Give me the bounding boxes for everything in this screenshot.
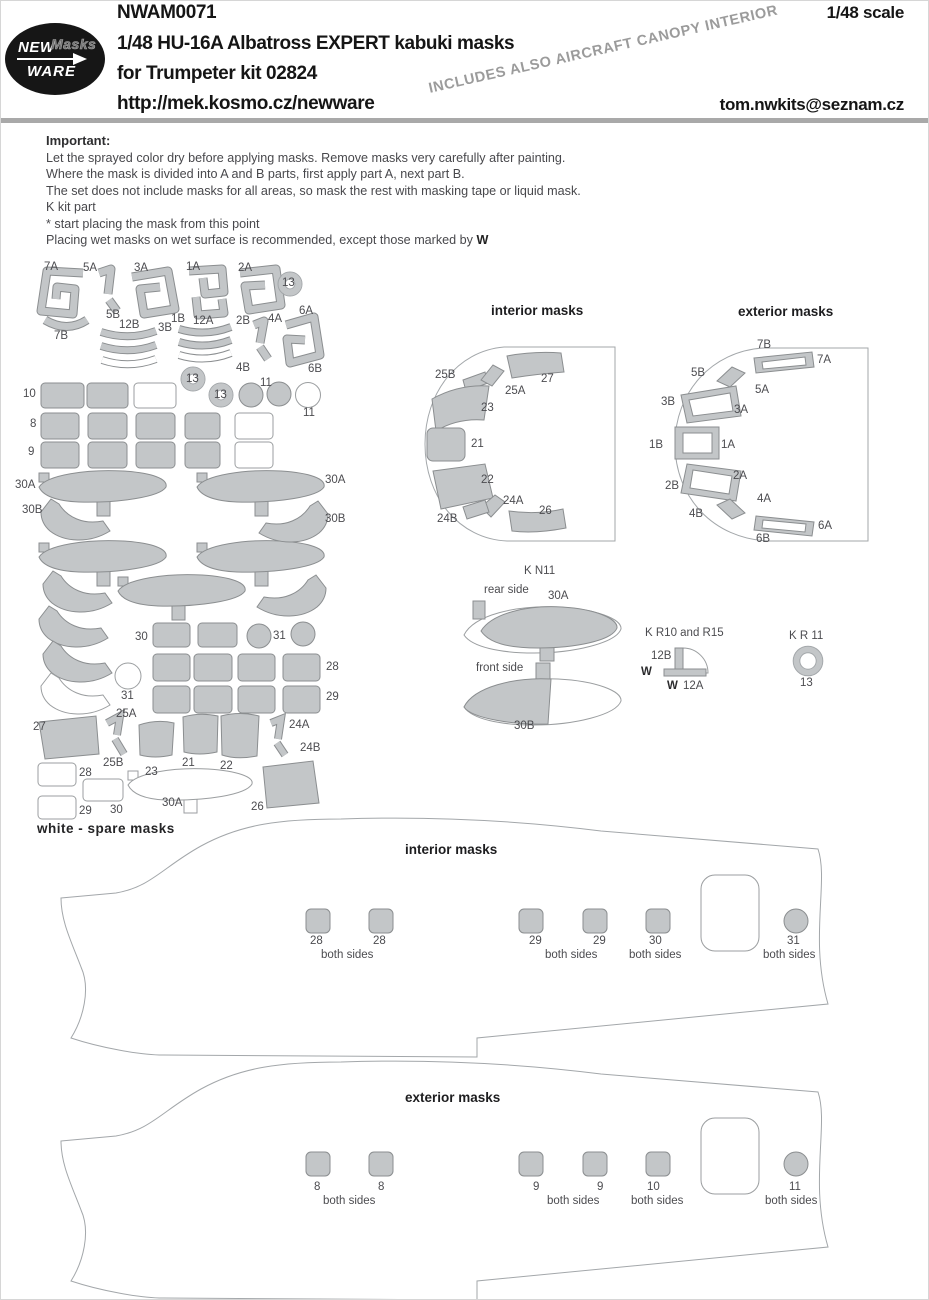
part-label: 30B [325, 513, 345, 525]
porthole-mask [784, 1152, 808, 1176]
instruction-sheet: NEW Masks WARE NWAM0071 1/48 HU-16A Alba… [0, 0, 929, 1300]
part-label: W [641, 666, 652, 678]
part-label: 4B [236, 362, 250, 374]
window-masks-row-10 [41, 383, 176, 408]
fuselage-interior-drawing [41, 819, 841, 1069]
part-label: 29 [593, 935, 606, 947]
part-label: both sides [763, 949, 815, 961]
part-label: 1B [171, 313, 185, 325]
part-label: 30 [649, 935, 662, 947]
part-label: 22 [481, 474, 494, 486]
instruction-line: K kit part [46, 199, 666, 215]
part-label: 1A [721, 439, 735, 451]
part-label: 5B [106, 309, 120, 321]
part-label: 12A [193, 315, 213, 327]
part-label: 29 [326, 691, 339, 703]
part-label: 24B [300, 742, 320, 754]
part-label: 27 [33, 721, 46, 733]
mask-22 [221, 714, 259, 758]
newware-logo: NEW Masks WARE [5, 23, 105, 95]
window-masks-row-30 [153, 622, 315, 648]
part-label: 30A [15, 479, 35, 491]
instructions-lines: Let the sprayed color dry before applyin… [46, 150, 666, 232]
part-label: 2A [238, 262, 252, 274]
part-label: both sides [323, 1195, 375, 1207]
part-label: 24A [503, 495, 523, 507]
part-label: 7A [817, 354, 831, 366]
ext-mask-5 [717, 367, 745, 387]
part-label: 30A [325, 474, 345, 486]
part-label: 5A [83, 262, 97, 274]
part-label: 11 [789, 1181, 801, 1193]
part-label: 29 [79, 805, 92, 817]
part-label: 7B [757, 339, 771, 351]
logo-text-new: NEW [18, 39, 55, 56]
ring-mask-13 [793, 646, 823, 676]
part-label: 25B [103, 757, 123, 769]
strip-masks-12B [101, 331, 156, 364]
door-outline [701, 875, 759, 951]
website-url: http://mek.kosmo.cz/newware [117, 93, 374, 115]
mask-25A-25B [107, 716, 124, 754]
mask-26 [263, 761, 319, 808]
part-label: 9 [533, 1181, 539, 1193]
part-label: 31 [273, 630, 286, 642]
canopy-mask-4 [254, 321, 268, 359]
mask-12A-bar [664, 669, 706, 676]
instruction-line: * start placing the mask from this point [46, 216, 666, 232]
part-label: 4A [757, 493, 771, 505]
part-label: 1A [186, 261, 200, 273]
part-label: both sides [321, 949, 373, 961]
part-label: 1B [649, 439, 663, 451]
part-label: K R10 and R15 [645, 627, 724, 639]
part-label: 8 [30, 418, 36, 430]
part-label: 11 [303, 407, 315, 419]
header-divider [1, 118, 929, 123]
part-label: 9 [597, 1181, 603, 1193]
part-label: 3B [661, 396, 675, 408]
part-label: 10 [647, 1181, 660, 1193]
part-label: 5B [691, 367, 705, 379]
logo-text-masks: Masks [51, 36, 96, 52]
part-label: 29 [529, 935, 542, 947]
part-label: 3B [158, 322, 172, 334]
part-label: 28 [79, 767, 92, 779]
int-mask-21 [427, 428, 465, 461]
part-label: 13 [186, 373, 199, 385]
wet-marker: W [476, 233, 488, 247]
window-masks-row-29 [153, 686, 320, 713]
part-label: 31 [787, 935, 800, 947]
part-label: 12B [651, 650, 671, 662]
part-label: 26 [539, 505, 552, 517]
instruction-line: The set does not include masks for all a… [46, 183, 666, 199]
logo-text-ware: WARE [27, 63, 76, 80]
mask-23 [139, 721, 174, 757]
part-label: 13 [800, 677, 813, 689]
door-outline [701, 1118, 759, 1194]
mask-27 [39, 716, 99, 759]
window-masks-row-8 [41, 413, 273, 439]
part-label: 8 [314, 1181, 320, 1193]
part-label: 25B [435, 369, 455, 381]
part-label: 12B [119, 319, 139, 331]
logo-arrow-icon [17, 58, 75, 60]
ext-mask-4 [717, 499, 745, 519]
part-label: 8 [378, 1181, 384, 1193]
product-subtitle: for Trumpeter kit 02824 [117, 63, 317, 85]
part-label: 30B [22, 504, 42, 516]
part-label: 26 [251, 801, 264, 813]
wet-masks-line: Placing wet masks on wet surface is reco… [46, 232, 666, 248]
part-label: both sides [631, 1195, 683, 1207]
part-label: 21 [471, 438, 484, 450]
part-label: both sides [765, 1195, 817, 1207]
porthole-masks-11 [239, 382, 321, 408]
part-label: 25A [116, 708, 136, 720]
part-label: 25A [505, 385, 525, 397]
part-label: 24B [437, 513, 457, 525]
part-label: 13 [282, 277, 295, 289]
part-label: 6B [756, 533, 770, 545]
part-label: 22 [220, 760, 233, 772]
part-label: K R 11 [789, 630, 823, 642]
canopy-mask-1 [189, 269, 224, 315]
part-label: 10 [23, 388, 36, 400]
part-label: 23 [145, 766, 158, 778]
part-label: 30A [162, 797, 182, 809]
part-label: 6B [308, 363, 322, 375]
window-masks-row-28 [153, 654, 320, 681]
part-label: both sides [547, 1195, 599, 1207]
fuselage-exterior-drawing [41, 1062, 841, 1300]
instruction-line: Where the mask is divided into A and B p… [46, 166, 666, 182]
part-label: 4B [689, 508, 703, 520]
ext-frame-7 [754, 352, 814, 373]
canopy-mask-7 [41, 271, 87, 327]
part-label: 12A [683, 680, 703, 692]
part-label: 21 [182, 757, 195, 769]
part-label: 2B [236, 315, 250, 327]
part-label: 4A [268, 313, 282, 325]
part-label: 30B [514, 720, 534, 732]
part-label: 3A [734, 404, 748, 416]
part-label: 28 [326, 661, 339, 673]
ext-frame-1 [675, 427, 719, 459]
int-mask-26 [509, 509, 566, 532]
instruction-line: Let the sprayed color dry before applyin… [46, 150, 666, 166]
int-mask-27 [507, 352, 564, 378]
part-label: 30 [110, 804, 123, 816]
part-label: 24A [289, 719, 309, 731]
instructions-block: Important: Let the sprayed color dry bef… [46, 133, 666, 248]
part-label: 7A [44, 261, 58, 273]
float-rear-side [464, 601, 621, 661]
part-label: 9 [28, 446, 34, 458]
mask-24A-24B [271, 719, 285, 755]
part-label: 2A [733, 470, 747, 482]
part-label: 7B [54, 330, 68, 342]
part-label: 30A [548, 590, 568, 602]
part-label: 27 [541, 373, 554, 385]
float-mask-center [118, 575, 245, 620]
spare-porthole-31 [115, 663, 141, 689]
product-title: 1/48 HU-16A Albatross EXPERT kabuki mask… [117, 33, 514, 55]
scale-label: 1/48 scale [827, 3, 904, 23]
ext-frame-2 [681, 464, 741, 501]
part-label: W [667, 680, 678, 692]
canopy-mask-5 [99, 269, 117, 311]
part-label: 2B [665, 480, 679, 492]
part-label: 30 [135, 631, 148, 643]
window-masks-row-9 [41, 442, 273, 468]
ext-frame-3 [681, 386, 741, 423]
part-label: 31 [121, 690, 134, 702]
part-label: 23 [481, 402, 494, 414]
porthole-mask [784, 909, 808, 933]
strip-masks-12A [179, 327, 231, 359]
part-label: K N11 [524, 565, 555, 577]
part-label: 6A [299, 305, 313, 317]
part-label: 3A [134, 262, 148, 274]
part-label: 5A [755, 384, 769, 396]
part-label: 28 [373, 935, 386, 947]
part-label: 13 [214, 389, 227, 401]
part-label: 28 [310, 935, 323, 947]
part-label: 11 [260, 377, 272, 389]
canopy-mask-3 [132, 271, 175, 314]
canopy-mask-6 [286, 317, 320, 363]
part-label: 6A [818, 520, 832, 532]
interior-masks-diagram [419, 301, 619, 546]
part-label: both sides [629, 949, 681, 961]
float-masks-30A-row1 [39, 471, 324, 516]
mask-21 [183, 714, 218, 754]
product-code: NWAM0071 [117, 2, 216, 24]
contact-email: tom.nwkits@seznam.cz [720, 95, 904, 115]
instructions-heading: Important: [46, 133, 666, 148]
mask-sheet-drawing [9, 256, 349, 846]
canopy-mask-2 [240, 269, 281, 310]
part-label: rear side [484, 584, 529, 596]
part-label: both sides [545, 949, 597, 961]
part-label: front side [476, 662, 523, 674]
